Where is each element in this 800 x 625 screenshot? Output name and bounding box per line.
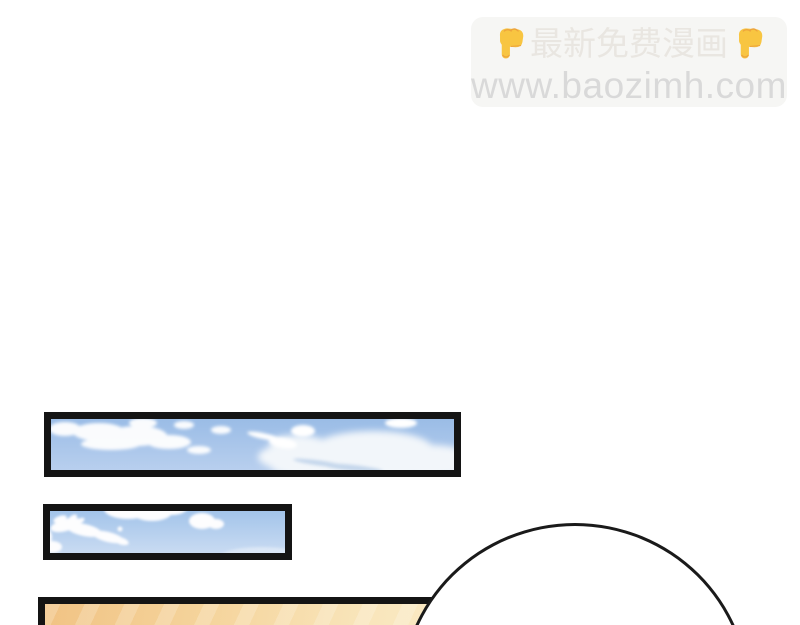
comic-page: 最新免费漫画 www.baozimh.com — [0, 0, 800, 625]
sky-clouds-art — [50, 511, 285, 553]
pointing-down-hand-icon — [494, 25, 525, 61]
speech-bubble — [400, 523, 750, 625]
watermark-url: www.baozimh.com — [471, 67, 787, 104]
watermark-heading: 最新免费漫画 — [530, 27, 728, 60]
comic-panel-sky-small — [43, 504, 292, 560]
sky-clouds-art — [51, 419, 454, 470]
watermark-heading-row: 最新免费漫画 — [494, 20, 764, 66]
watermark-box: 最新免费漫画 www.baozimh.com — [471, 17, 787, 107]
comic-panel-sky-wide — [44, 412, 461, 477]
pointing-down-hand-icon — [733, 25, 764, 61]
